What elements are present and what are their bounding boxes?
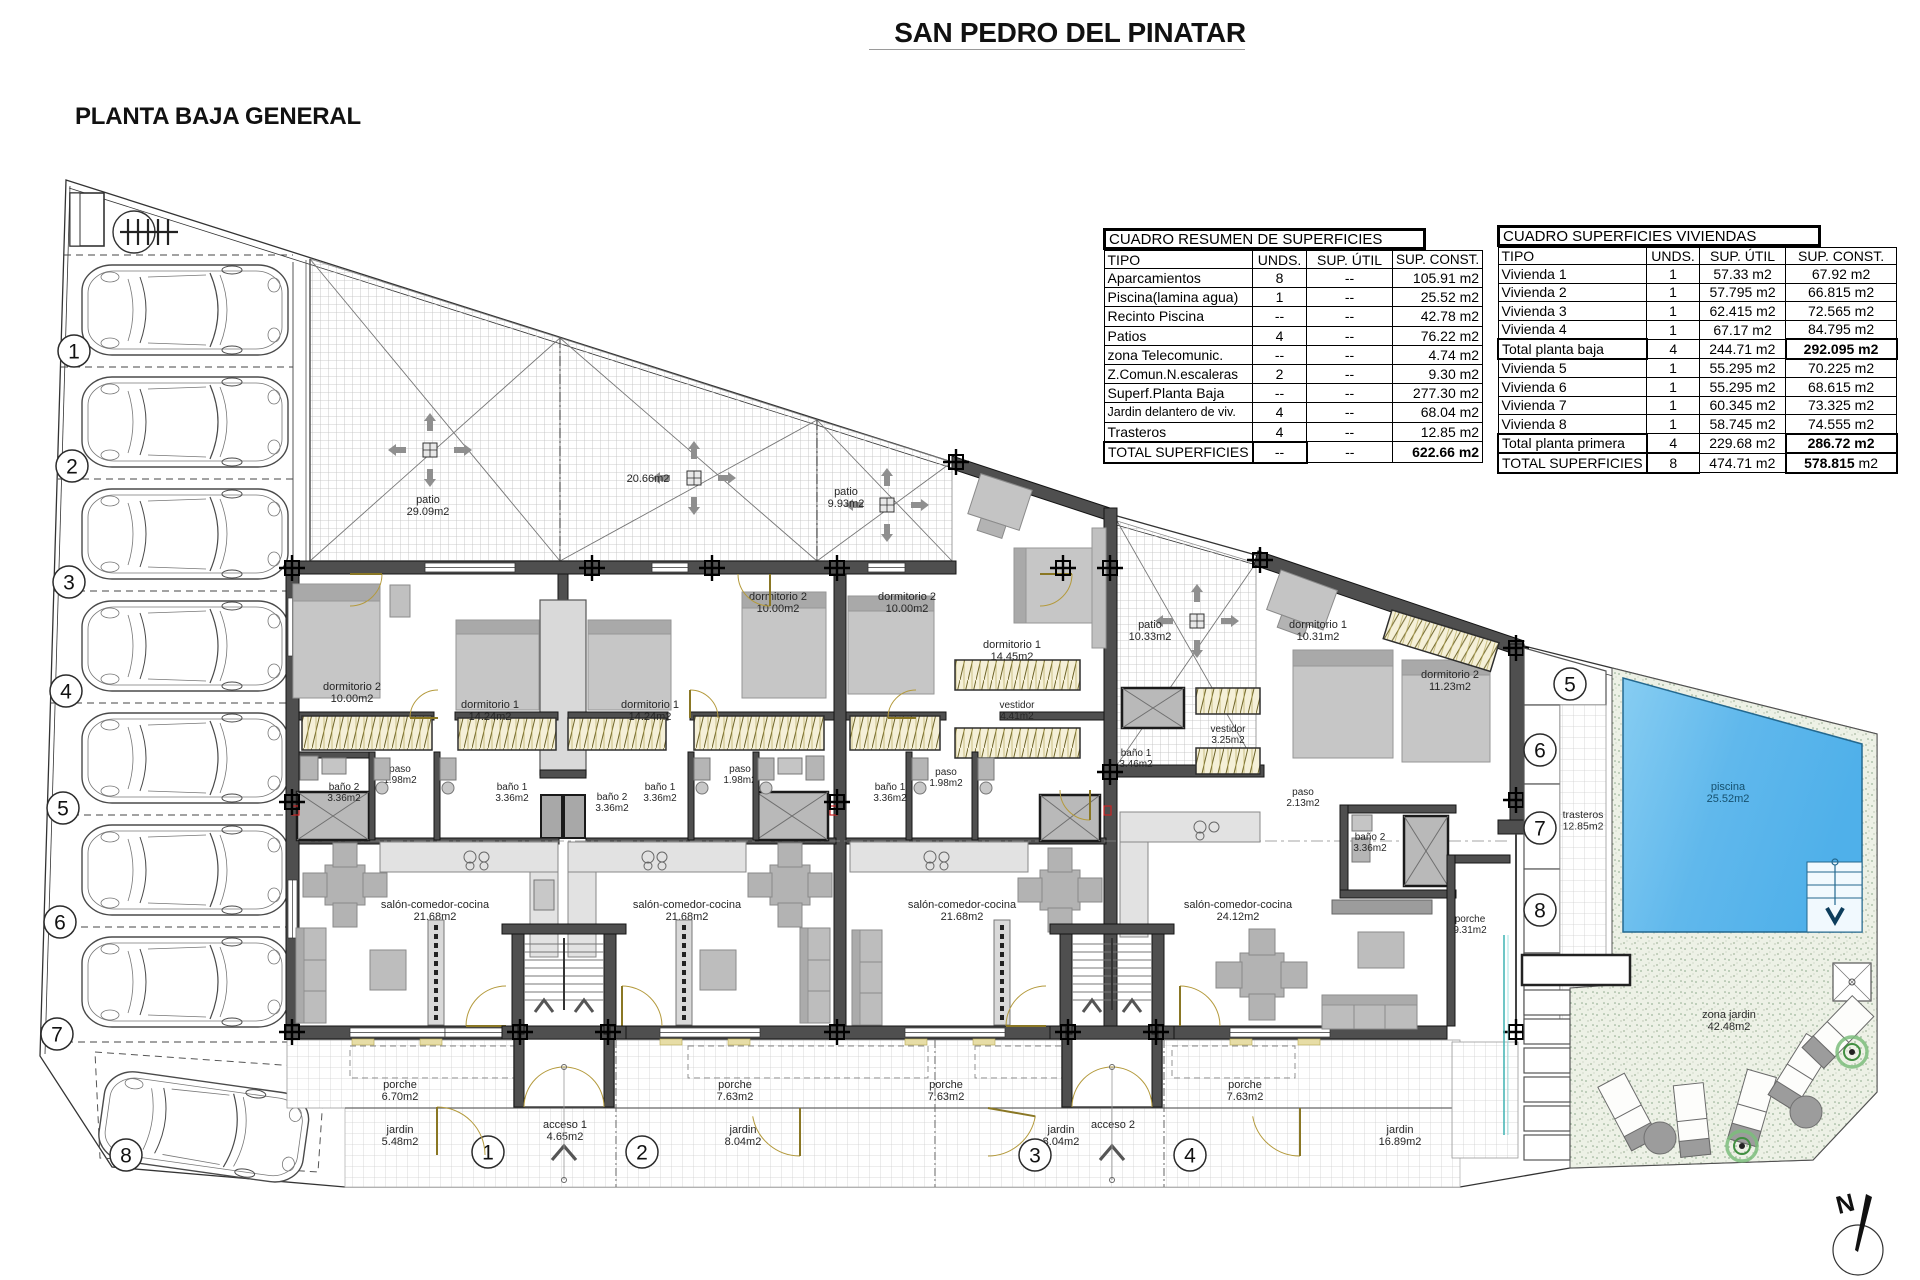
svg-text:9.93m2: 9.93m2 bbox=[828, 498, 865, 510]
svg-text:10.00m2: 10.00m2 bbox=[331, 693, 374, 705]
svg-text:10.00m2: 10.00m2 bbox=[886, 603, 929, 615]
svg-text:baño 2: baño 2 bbox=[329, 782, 360, 793]
svg-text:piscina: piscina bbox=[1711, 781, 1746, 793]
svg-text:14.24m2: 14.24m2 bbox=[629, 711, 672, 723]
svg-text:dormitorio 1: dormitorio 1 bbox=[621, 699, 679, 711]
svg-text:jardin: jardin bbox=[1386, 1124, 1414, 1136]
svg-text:6: 6 bbox=[54, 911, 66, 934]
svg-text:3.36m2: 3.36m2 bbox=[873, 793, 907, 804]
svg-text:6.70m2: 6.70m2 bbox=[382, 1091, 419, 1103]
svg-text:N: N bbox=[1833, 1188, 1857, 1220]
svg-text:16.89m2: 16.89m2 bbox=[1379, 1136, 1422, 1148]
svg-text:patio: patio bbox=[416, 494, 440, 506]
svg-text:1.98m2: 1.98m2 bbox=[929, 778, 963, 789]
svg-text:baño 1: baño 1 bbox=[645, 782, 676, 793]
svg-text:3.36m2: 3.36m2 bbox=[595, 803, 629, 814]
svg-text:patio: patio bbox=[1138, 619, 1162, 631]
svg-text:salón-comedor-cocina: salón-comedor-cocina bbox=[633, 899, 742, 911]
svg-text:baño 2: baño 2 bbox=[1355, 832, 1386, 843]
svg-text:3.25m2: 3.25m2 bbox=[1211, 735, 1245, 746]
svg-text:10.31m2: 10.31m2 bbox=[1297, 631, 1340, 643]
svg-text:zona jardin: zona jardin bbox=[1702, 1009, 1756, 1021]
svg-text:7.63m2: 7.63m2 bbox=[717, 1091, 754, 1103]
svg-text:dormitorio 2: dormitorio 2 bbox=[1421, 669, 1479, 681]
svg-text:acceso 1: acceso 1 bbox=[543, 1119, 587, 1131]
svg-text:paso: paso bbox=[1292, 787, 1314, 798]
svg-text:paso: paso bbox=[935, 767, 957, 778]
svg-text:trasteros: trasteros bbox=[1563, 809, 1604, 821]
svg-text:dormitorio 2: dormitorio 2 bbox=[878, 591, 936, 603]
svg-text:baño 1: baño 1 bbox=[875, 782, 906, 793]
svg-text:5: 5 bbox=[57, 797, 69, 820]
svg-text:4: 4 bbox=[60, 680, 72, 703]
svg-text:29.09m2: 29.09m2 bbox=[407, 506, 450, 518]
svg-text:porche: porche bbox=[383, 1079, 417, 1091]
svg-text:7: 7 bbox=[51, 1023, 63, 1046]
svg-text:11.23m2: 11.23m2 bbox=[1429, 681, 1471, 693]
svg-text:3: 3 bbox=[63, 571, 75, 594]
svg-text:baño 1: baño 1 bbox=[1121, 748, 1152, 759]
svg-text:vestidor: vestidor bbox=[1210, 724, 1246, 735]
svg-text:salón-comedor-cocina: salón-comedor-cocina bbox=[1184, 899, 1293, 911]
svg-text:vestidor: vestidor bbox=[999, 700, 1035, 711]
svg-text:12.85m2: 12.85m2 bbox=[1563, 821, 1604, 833]
svg-text:5: 5 bbox=[1564, 673, 1576, 696]
svg-text:jardin: jardin bbox=[386, 1124, 414, 1136]
svg-text:jardin: jardin bbox=[1047, 1124, 1075, 1136]
svg-text:3.36m2: 3.36m2 bbox=[643, 793, 677, 804]
svg-text:2.13m2: 2.13m2 bbox=[1286, 798, 1320, 809]
svg-text:baño 1: baño 1 bbox=[497, 782, 528, 793]
svg-text:4: 4 bbox=[1184, 1144, 1196, 1167]
svg-text:8: 8 bbox=[120, 1144, 132, 1167]
svg-text:baño 2: baño 2 bbox=[597, 792, 628, 803]
svg-text:3.36m2: 3.36m2 bbox=[1353, 843, 1387, 854]
svg-text:jardin: jardin bbox=[729, 1124, 757, 1136]
svg-text:1.98m2: 1.98m2 bbox=[723, 775, 757, 786]
svg-text:21.68m2: 21.68m2 bbox=[941, 911, 984, 923]
svg-text:dormitorio 2: dormitorio 2 bbox=[749, 591, 807, 603]
svg-text:2: 2 bbox=[66, 455, 78, 478]
svg-text:1: 1 bbox=[68, 340, 80, 363]
svg-text:6: 6 bbox=[1534, 739, 1546, 762]
svg-text:24.12m2: 24.12m2 bbox=[1217, 911, 1260, 923]
svg-text:9.31m2: 9.31m2 bbox=[1453, 925, 1487, 936]
svg-text:25.52m2: 25.52m2 bbox=[1707, 793, 1750, 805]
svg-text:salón-comedor-cocina: salón-comedor-cocina bbox=[908, 899, 1017, 911]
svg-text:2: 2 bbox=[636, 1141, 648, 1164]
svg-text:dormitorio 1: dormitorio 1 bbox=[461, 699, 519, 711]
svg-text:7.63m2: 7.63m2 bbox=[1227, 1091, 1264, 1103]
svg-text:3.46m2: 3.46m2 bbox=[1119, 759, 1153, 770]
svg-text:porche: porche bbox=[1228, 1079, 1262, 1091]
svg-text:dormitorio 1: dormitorio 1 bbox=[1289, 619, 1347, 631]
svg-text:dormitorio 1: dormitorio 1 bbox=[983, 639, 1041, 651]
svg-text:42.48m2: 42.48m2 bbox=[1708, 1021, 1751, 1033]
svg-text:3: 3 bbox=[1029, 1144, 1041, 1167]
svg-text:8.04m2: 8.04m2 bbox=[725, 1136, 762, 1148]
svg-text:porche: porche bbox=[1455, 914, 1486, 925]
svg-text:7.63m2: 7.63m2 bbox=[928, 1091, 965, 1103]
svg-text:porche: porche bbox=[929, 1079, 963, 1091]
svg-text:3.36m2: 3.36m2 bbox=[495, 793, 529, 804]
svg-text:paso: paso bbox=[389, 764, 411, 775]
svg-text:4.65m2: 4.65m2 bbox=[547, 1131, 584, 1143]
svg-text:patio: patio bbox=[834, 486, 858, 498]
svg-text:acceso 2: acceso 2 bbox=[1091, 1119, 1135, 1131]
svg-text:4.41m2: 4.41m2 bbox=[1000, 711, 1034, 722]
svg-text:3.36m2: 3.36m2 bbox=[327, 793, 361, 804]
svg-text:dormitorio 2: dormitorio 2 bbox=[323, 681, 381, 693]
svg-text:14.24m2: 14.24m2 bbox=[469, 711, 512, 723]
svg-text:7: 7 bbox=[1534, 817, 1546, 840]
svg-text:porche: porche bbox=[718, 1079, 752, 1091]
svg-text:5.48m2: 5.48m2 bbox=[382, 1136, 419, 1148]
svg-text:salón-comedor-cocina: salón-comedor-cocina bbox=[381, 899, 490, 911]
svg-text:8: 8 bbox=[1534, 899, 1546, 922]
svg-text:20.66m2: 20.66m2 bbox=[627, 473, 670, 485]
svg-text:paso: paso bbox=[729, 764, 751, 775]
svg-text:10.33m2: 10.33m2 bbox=[1129, 631, 1172, 643]
